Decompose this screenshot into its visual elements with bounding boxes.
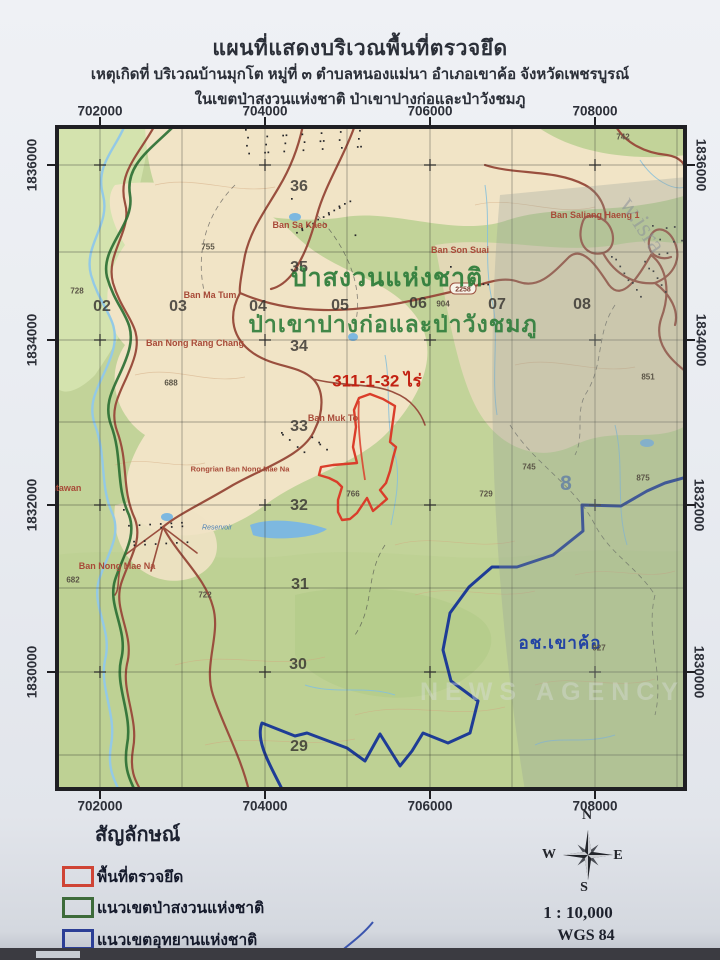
grid-tick	[99, 117, 101, 125]
grid-tick	[47, 504, 55, 506]
watermark-bottom-text: NEWS AGENCY	[420, 678, 685, 707]
grid-tick	[594, 791, 596, 799]
easting-label-bottom: 702000	[77, 799, 122, 814]
photo-edge-highlight	[36, 951, 80, 958]
grid-tick	[429, 791, 431, 799]
grid-tick	[47, 339, 55, 341]
grid-tick	[687, 164, 695, 166]
northing-label-right: 1836000	[694, 139, 709, 192]
easting-label-bottom: 708000	[572, 799, 617, 814]
svg-text:2258: 2258	[455, 287, 471, 294]
legend-swatch-park-boundary	[62, 929, 94, 950]
photo-edge-shadow	[0, 948, 720, 960]
grid-tick	[47, 671, 55, 673]
map-datum: WGS 84	[557, 927, 614, 945]
incident-location-line: เหตุเกิดที่ บริเวณบ้านมุกโต หมู่ที่ ๓ ตำ…	[0, 62, 720, 86]
legend-swatch-forest-boundary	[62, 897, 94, 918]
easting-label-bottom: 704000	[242, 799, 287, 814]
legend-item-label: แนวเขตป่าสงวนแห่งชาติ	[97, 895, 264, 920]
compass-e-label: E	[613, 848, 622, 864]
grid-tick	[687, 504, 695, 506]
legend-swatch-seized-area	[62, 866, 94, 887]
northing-label-left: 1836000	[25, 139, 40, 192]
compass-s-label: S	[580, 880, 588, 896]
compass-rose-icon	[562, 829, 614, 881]
northing-label-right: 1834000	[694, 314, 709, 367]
grid-tick	[687, 339, 695, 341]
grid-tick	[47, 164, 55, 166]
grid-tick	[264, 791, 266, 799]
legend-item-label: พื้นที่ตรวจยึด	[97, 864, 183, 889]
map-scale: 1 : 10,000	[543, 903, 612, 923]
grid-tick	[99, 791, 101, 799]
road-number-badge: 2258	[450, 283, 476, 294]
grid-tick	[429, 117, 431, 125]
compass-n-label: N	[582, 808, 592, 824]
northing-label-left: 1834000	[25, 314, 40, 367]
topographic-map: 2258 36 35 34 33 32 31 30 29 02 03 04 05…	[55, 125, 687, 791]
grid-tick	[594, 117, 596, 125]
grid-tick	[264, 117, 266, 125]
northing-label-left: 1830000	[25, 646, 40, 699]
easting-label-bottom: 706000	[407, 799, 452, 814]
page-title: แผนที่แสดงบริเวณพื้นที่ตรวจยึด	[0, 32, 720, 65]
grid-tick	[687, 671, 695, 673]
northing-label-left: 1832000	[25, 479, 40, 532]
compass-w-label: W	[542, 847, 556, 863]
legend-heading: สัญลักษณ์	[95, 818, 180, 850]
photographed-map-document: แผนที่แสดงบริเวณพื้นที่ตรวจยึด เหตุเกิดท…	[0, 0, 720, 960]
